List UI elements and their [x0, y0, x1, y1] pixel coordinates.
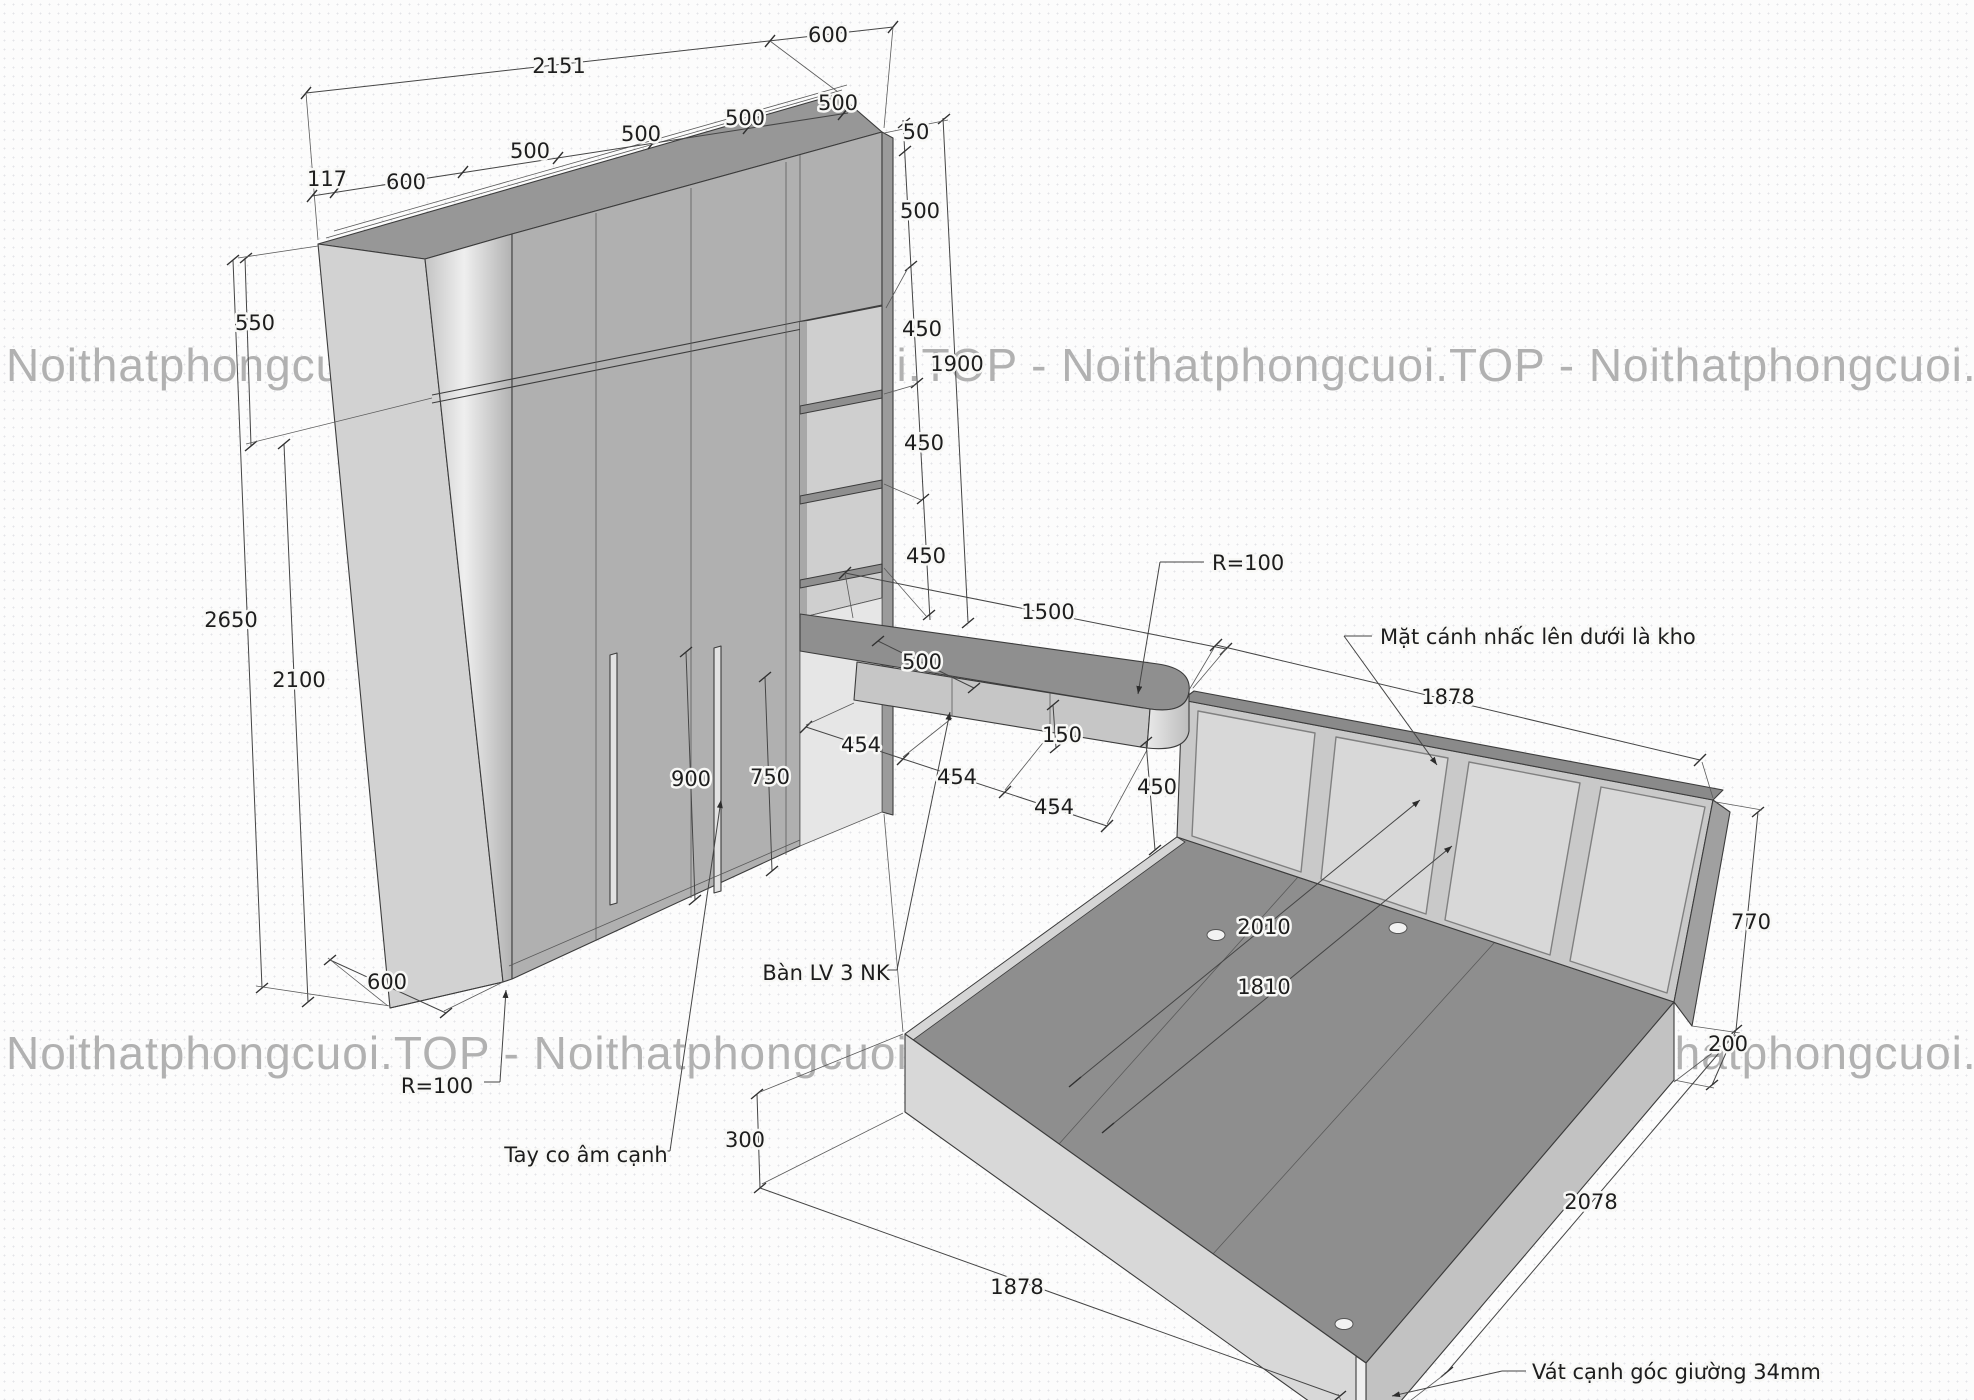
dim-label-500-1: 500 [510, 139, 550, 163]
dim-label-2010: 2010 [1237, 915, 1290, 939]
dim-label-300: 300 [725, 1128, 765, 1152]
dim-label-750: 750 [750, 765, 790, 789]
dim-label-450-2: 450 [904, 431, 944, 455]
dim-label-550: 550 [235, 311, 275, 335]
dim-label-2650: 2650 [204, 608, 257, 632]
door-handle-strip-2 [714, 646, 721, 893]
dim-label-454-c: 454 [1034, 795, 1074, 819]
dim-label-600-base: 600 [367, 970, 407, 994]
dim-label-117: 117 [307, 167, 347, 191]
dim-label-900: 900 [671, 767, 711, 791]
dim-label-1810: 1810 [1237, 975, 1290, 999]
niche-side-shadow [800, 321, 807, 618]
dim-label-200: 200 [1708, 1032, 1748, 1056]
dim-label-50: 50 [903, 120, 930, 144]
screw-icon [1335, 1319, 1353, 1330]
note-desk: Bàn LV 3 NK [762, 961, 890, 985]
note-headboard: Mặt cánh nhấc lên dưới là kho [1380, 625, 1696, 649]
dim-label-500-right: 500 [900, 199, 940, 223]
dim-label-770: 770 [1731, 910, 1771, 934]
dim-label-1878-bed: 1878 [990, 1275, 1043, 1299]
dim-label-450-3: 450 [906, 544, 946, 568]
dim-label-500-2: 500 [621, 122, 661, 146]
note-handle: Tay co âm cạnh [503, 1143, 667, 1167]
dim-label-2100: 2100 [272, 668, 325, 692]
dim-label-450-desk: 450 [1137, 775, 1177, 799]
radius-label-base: R=100 [401, 1074, 473, 1098]
wardrobe-right-edge [882, 132, 893, 815]
dim-label-600-left: 600 [386, 170, 426, 194]
dim-label-500-3: 500 [725, 106, 765, 130]
dim-label-450-1: 450 [902, 317, 942, 341]
dim-label-2078: 2078 [1564, 1190, 1617, 1214]
floor-corner-line [884, 814, 903, 1032]
dim-label-600-top: 600 [808, 23, 848, 47]
radius-label-desk: R=100 [1212, 551, 1284, 575]
dim-label-150: 150 [1042, 723, 1082, 747]
dim-label-454-b: 454 [937, 765, 977, 789]
furniture-technical-drawing: 2151 600 117 600 500 500 500 500 50 500 … [0, 0, 1974, 1400]
bed-chamfer-corner [1356, 1356, 1366, 1400]
dim-label-500-desk: 500 [902, 650, 942, 674]
dim-label-1900: 1900 [930, 352, 983, 376]
door-handle-strip-1 [610, 653, 617, 905]
dim-label-500-4: 500 [818, 91, 858, 115]
dim-label-454-a: 454 [841, 733, 881, 757]
screw-icon [1389, 923, 1407, 934]
dim-label-2151: 2151 [532, 54, 585, 78]
screw-icon [1207, 930, 1225, 941]
dim-label-1878-headboard: 1878 [1421, 685, 1474, 709]
wardrobe [318, 85, 903, 1032]
dim-label-1500: 1500 [1021, 600, 1074, 624]
note-chamfer: Vát cạnh góc giường 34mm [1532, 1360, 1821, 1384]
